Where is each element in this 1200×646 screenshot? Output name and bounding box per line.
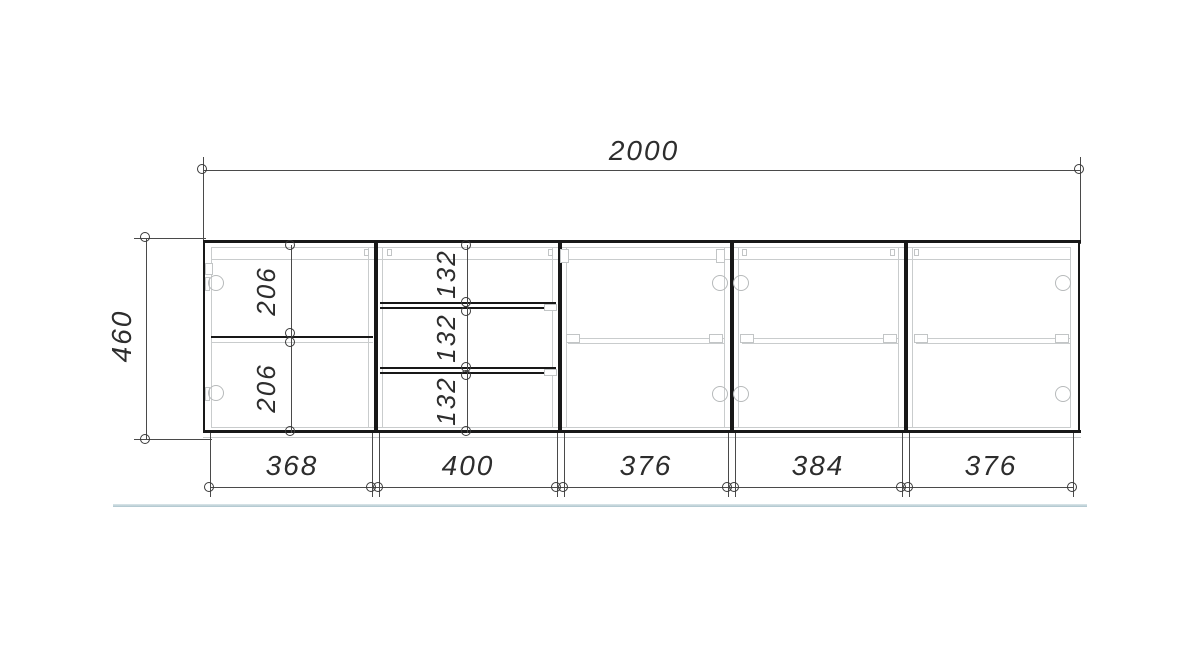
fitting-mark bbox=[914, 249, 919, 256]
dim-endpoint-circle bbox=[729, 482, 739, 492]
shelf-connector bbox=[709, 334, 723, 343]
section3-shelf-underline bbox=[568, 343, 724, 344]
section3-shelf bbox=[568, 338, 724, 339]
dim-endpoint-circle bbox=[461, 240, 471, 250]
dim-endpoint-circle bbox=[140, 232, 150, 242]
dim-endpoint-circle bbox=[140, 434, 150, 444]
shelf-connector bbox=[883, 334, 897, 343]
hinge-circle bbox=[1055, 386, 1071, 402]
section5-shelf-underline bbox=[916, 343, 1070, 344]
fitting-mark bbox=[560, 249, 569, 263]
section1-width-label: 368 bbox=[266, 452, 319, 480]
divider-2 bbox=[558, 243, 562, 430]
divider-4 bbox=[904, 243, 908, 430]
section2-width-label: 400 bbox=[442, 452, 495, 480]
drawer1-dim-label: 132 bbox=[433, 249, 459, 298]
dim-endpoint-circle bbox=[204, 482, 214, 492]
shelf-connector bbox=[914, 334, 928, 343]
floor-line bbox=[113, 504, 1087, 507]
dim-endpoint-circle bbox=[285, 426, 295, 436]
height-dim-line bbox=[146, 238, 147, 440]
dim-endpoint-circle bbox=[285, 337, 295, 347]
fitting-mark bbox=[716, 249, 725, 263]
dim-endpoint-circle bbox=[461, 426, 471, 436]
drawer-dim-line bbox=[467, 245, 468, 433]
height-dim-label: 460 bbox=[108, 310, 136, 363]
section4-width-label: 384 bbox=[792, 452, 845, 480]
hinge-circle bbox=[733, 386, 749, 402]
drawer2-dim-label: 132 bbox=[433, 313, 459, 362]
cabinet-top-edge bbox=[203, 240, 1081, 243]
fitting-mark bbox=[890, 249, 895, 256]
dim-endpoint-circle bbox=[461, 370, 471, 380]
hinge-circle bbox=[712, 275, 728, 291]
dim-endpoint-circle bbox=[197, 164, 207, 174]
hinge-circle bbox=[208, 275, 224, 291]
bottom-dim-line bbox=[210, 487, 1074, 488]
dim-endpoint-circle bbox=[285, 240, 295, 250]
width-dim-label: 2000 bbox=[609, 137, 679, 165]
divider-face-line bbox=[552, 247, 553, 427]
divider-face-line bbox=[912, 247, 913, 427]
dim-endpoint-circle bbox=[373, 482, 383, 492]
dim-endpoint-circle bbox=[558, 482, 568, 492]
drawer-slide-mark bbox=[544, 369, 557, 376]
divider-face-line bbox=[382, 247, 383, 427]
dim-endpoint-circle bbox=[1074, 164, 1084, 174]
section3-width-label: 376 bbox=[620, 452, 673, 480]
dim-endpoint-circle bbox=[461, 306, 471, 316]
divider-3 bbox=[730, 243, 734, 430]
section1-bottom-dim-label: 206 bbox=[253, 363, 279, 412]
cabinet-right-edge bbox=[1078, 240, 1080, 433]
section5-shelf bbox=[916, 338, 1070, 339]
shelf-connector bbox=[566, 334, 580, 343]
hinge-circle bbox=[733, 275, 749, 291]
width-dim-line bbox=[203, 170, 1081, 171]
fitting-mark bbox=[742, 249, 747, 256]
door-top-line bbox=[212, 259, 1070, 260]
left-corner-detail bbox=[205, 263, 213, 275]
section1-top-dim-label: 206 bbox=[253, 266, 279, 315]
drawer3-dim-label: 132 bbox=[433, 376, 459, 425]
hinge-circle bbox=[712, 386, 728, 402]
fitting-mark bbox=[548, 249, 553, 256]
hinge-circle bbox=[208, 385, 224, 401]
dim-endpoint-circle bbox=[903, 482, 913, 492]
shelf-connector bbox=[740, 334, 754, 343]
section4-shelf bbox=[742, 338, 898, 339]
dim-endpoint-circle bbox=[1067, 482, 1077, 492]
fitting-mark bbox=[387, 249, 392, 256]
drawer-slide-mark bbox=[544, 304, 557, 311]
top-panel-inner-line bbox=[212, 247, 1070, 248]
section4-shelf-underline bbox=[742, 343, 898, 344]
bottom-panel-inner-line bbox=[212, 427, 1070, 428]
right-panel-inner-line bbox=[1070, 247, 1071, 428]
section5-width-label: 376 bbox=[965, 452, 1018, 480]
furniture-drawing: 2000 460 bbox=[0, 0, 1200, 646]
shelf-connector bbox=[1055, 334, 1069, 343]
divider-1 bbox=[374, 243, 378, 430]
fitting-mark bbox=[364, 249, 369, 256]
bottom-outer-line bbox=[203, 437, 1081, 438]
hinge-circle bbox=[1055, 275, 1071, 291]
cabinet-bottom-edge bbox=[203, 430, 1081, 433]
divider-face-line bbox=[898, 247, 899, 427]
